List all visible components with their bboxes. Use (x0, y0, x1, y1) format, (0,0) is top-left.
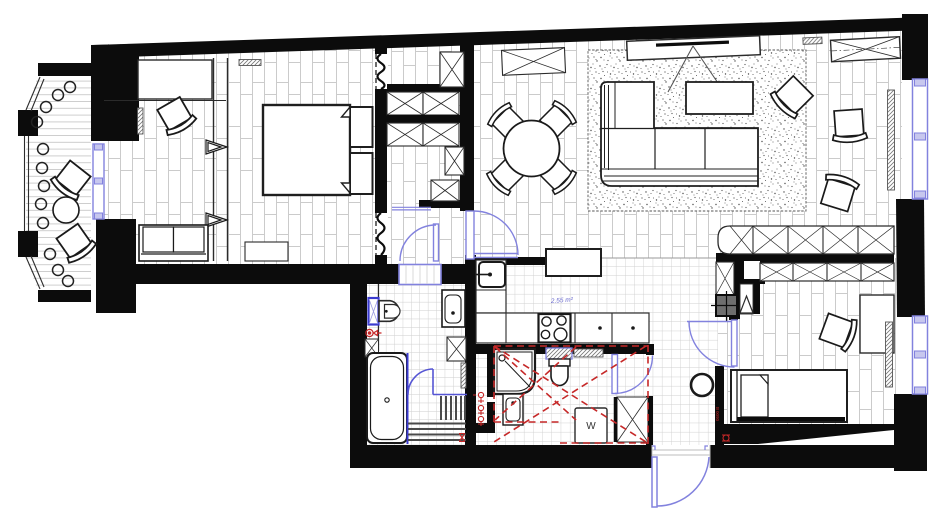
svg-text:0500 B: 0500 B (715, 407, 720, 421)
svg-text:W: W (586, 421, 596, 432)
